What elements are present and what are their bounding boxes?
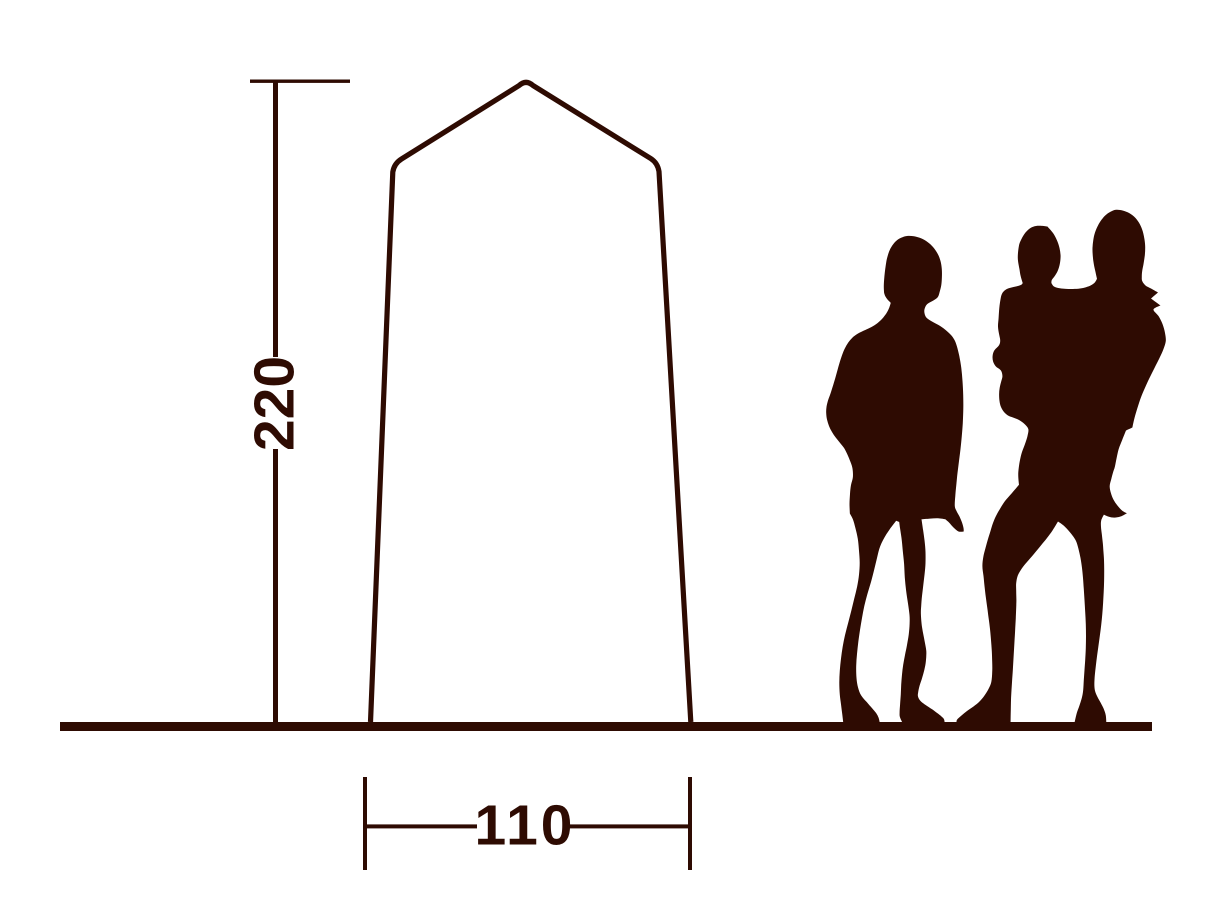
svg-text:110: 110 [475,794,576,858]
svg-text:220: 220 [243,356,307,451]
